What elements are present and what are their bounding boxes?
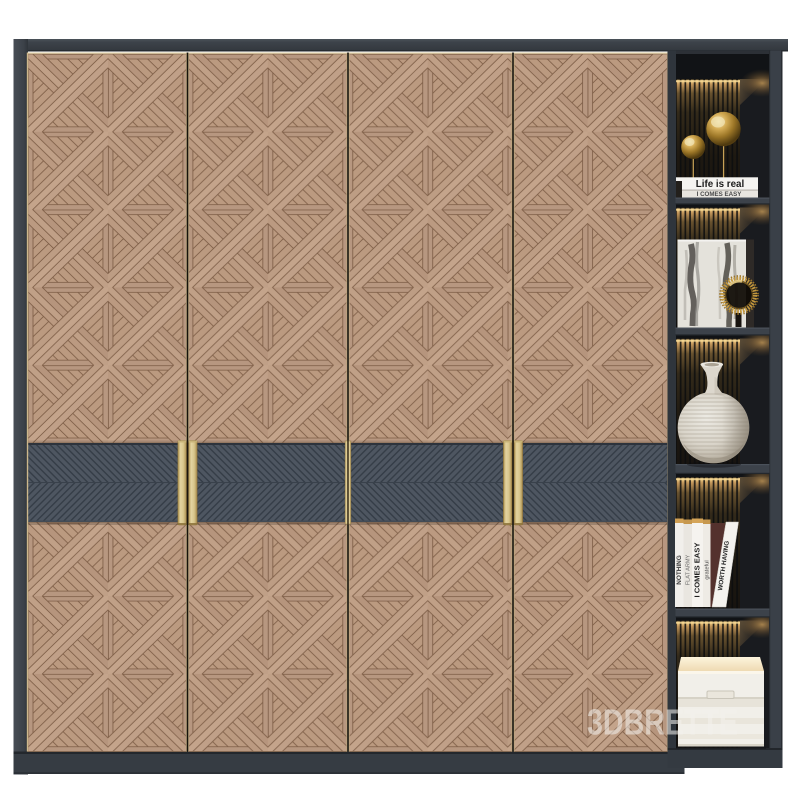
svg-text:I COMES EASY: I COMES EASY <box>693 543 702 598</box>
svg-text:FLAT ARMY: FLAT ARMY <box>686 554 692 585</box>
svg-text:NOTHING: NOTHING <box>676 555 683 584</box>
svg-text:grateful: grateful <box>705 560 711 579</box>
svg-text:I COMES EASY: I COMES EASY <box>697 191 743 198</box>
svg-text:Life is real: Life is real <box>696 179 745 190</box>
svg-text:3DBRETTE: 3DBRETTE <box>587 702 738 743</box>
